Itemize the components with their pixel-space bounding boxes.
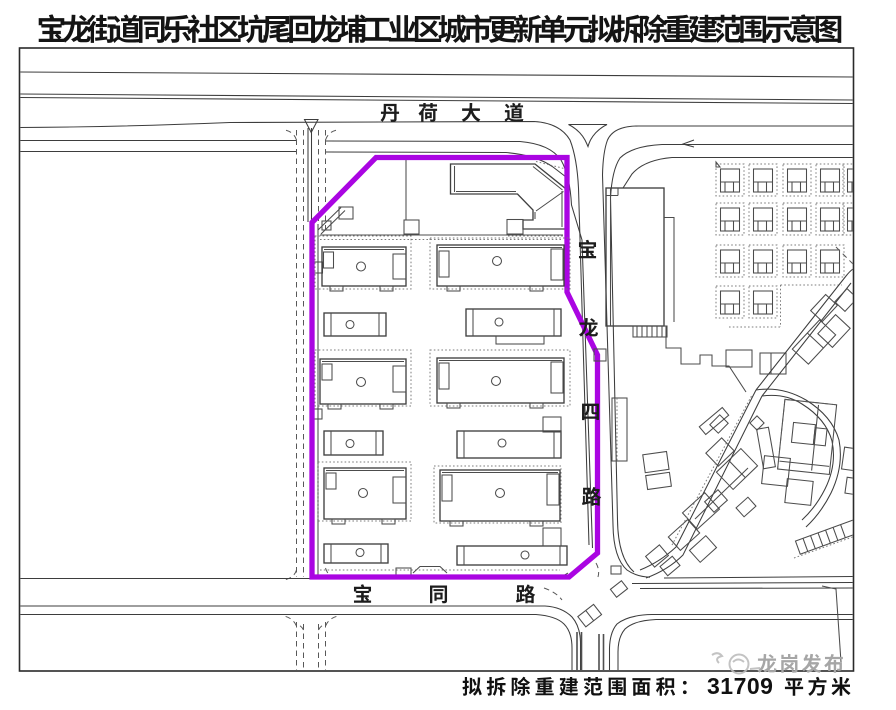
svg-text:31709: 31709 bbox=[707, 673, 773, 699]
